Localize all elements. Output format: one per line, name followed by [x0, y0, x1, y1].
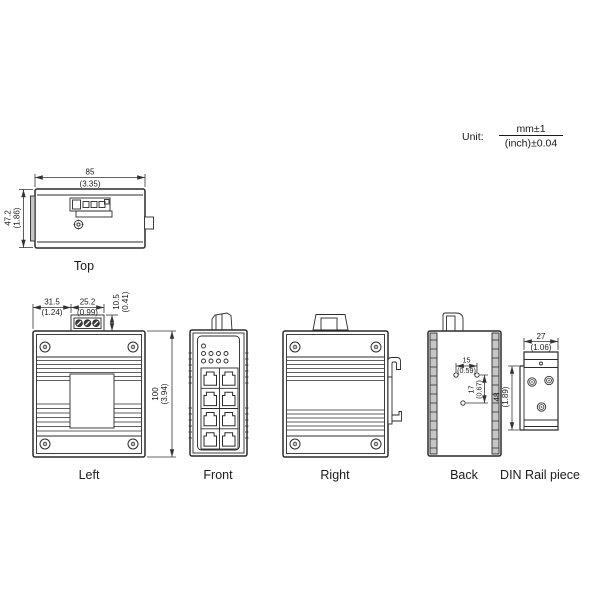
corner-screw-icon [290, 342, 300, 352]
corner-screw-icon [40, 342, 50, 352]
front-terminal-block [212, 313, 232, 330]
din-screw-icon [537, 403, 545, 411]
dim-top-depth-mm: 47.2 [4, 210, 13, 226]
left-center-plate [70, 374, 114, 428]
right-view-label: Right [320, 468, 350, 482]
top-right-tab [145, 217, 154, 229]
right-terminal-block [313, 315, 348, 331]
right-view: Right [283, 315, 402, 483]
dim-top-width-in: (3.35) [80, 180, 101, 189]
terminal-screw-icon [93, 320, 100, 327]
left-view: 31.5 (1.24) 25.2 (0.99) 10.5 (0.41) 100 … [33, 291, 176, 482]
dim-left-offset-in: (1.24) [42, 308, 63, 317]
dim-din-height-in: (1.89) [501, 386, 510, 407]
back-terminal-block [443, 313, 463, 331]
unit-note: Unit: mm±1 (inch)±0.04 [462, 123, 563, 150]
top-view: 85 (3.35) 47.2 (1.86) Top [4, 168, 154, 274]
dim-top-depth-in: (1.86) [13, 207, 22, 228]
din-view-label: DIN Rail piece [500, 468, 580, 482]
left-terminal-block [71, 315, 104, 331]
engineering-drawing: Unit: mm±1 (inch)±0.04 85 [0, 0, 600, 600]
dim-left-terminal: 25.2 (0.99) [71, 298, 104, 318]
unit-inch-tolerance: (inch)±0.04 [505, 138, 558, 150]
top-left-strip [31, 196, 36, 241]
drawing-canvas: Unit: mm±1 (inch)±0.04 85 [0, 0, 600, 600]
dim-back-pitch-in: (0.67) [475, 380, 484, 399]
dim-top-width-mm: 85 [86, 168, 95, 177]
dim-back-hole-mm: 15 [463, 356, 471, 365]
top-view-label: Top [74, 259, 94, 273]
terminal-screw-icon [84, 320, 91, 327]
dim-top-width: 85 (3.35) [35, 168, 145, 189]
din-rail-view: 27 (1.06) 48 (1.89) DIN Rail piece [493, 332, 580, 482]
front-view: Front [189, 313, 249, 482]
back-view: 15 (0.59) 17 (0.67) Back [428, 313, 501, 482]
dim-left-height: 100 (3.94) [147, 331, 176, 457]
corner-screw-icon [128, 439, 138, 449]
din-screw-icon [545, 376, 553, 384]
terminal-screw-icon [76, 320, 83, 327]
dim-din-width-in: (1.06) [531, 343, 552, 352]
corner-screw-icon [128, 342, 138, 352]
dim-left-terminal-in: (0.99) [77, 308, 98, 317]
din-screw-icon [528, 378, 536, 386]
din-body [520, 352, 558, 430]
din-clip-icon [388, 358, 402, 425]
dim-din-width-mm: 27 [537, 332, 546, 341]
dim-left-terminal-h-mm: 10.5 [112, 294, 121, 310]
corner-screw-icon [371, 342, 381, 352]
left-view-label: Left [79, 468, 100, 482]
dim-din-width: 27 (1.06) [524, 332, 558, 352]
corner-screw-icon [290, 439, 300, 449]
back-view-label: Back [450, 468, 479, 482]
back-body [428, 331, 501, 456]
dim-top-depth: 47.2 (1.86) [4, 190, 34, 248]
dim-back-hole-in: (0.59) [457, 366, 476, 375]
unit-prefix: Unit: [462, 131, 484, 143]
corner-screw-icon [371, 439, 381, 449]
dim-left-terminal-h-in: (0.41) [121, 291, 130, 312]
unit-mm-tolerance: mm±1 [516, 123, 545, 135]
dim-left-offset-mm: 31.5 [44, 298, 60, 307]
dim-left-terminal-height: 10.5 (0.41) [106, 291, 130, 331]
dim-left-terminal-mm: 25.2 [80, 298, 96, 307]
front-view-label: Front [203, 468, 233, 482]
dim-left-height-mm: 100 [151, 387, 160, 401]
dim-left-height-in: (3.94) [160, 383, 169, 404]
corner-screw-icon [40, 439, 50, 449]
